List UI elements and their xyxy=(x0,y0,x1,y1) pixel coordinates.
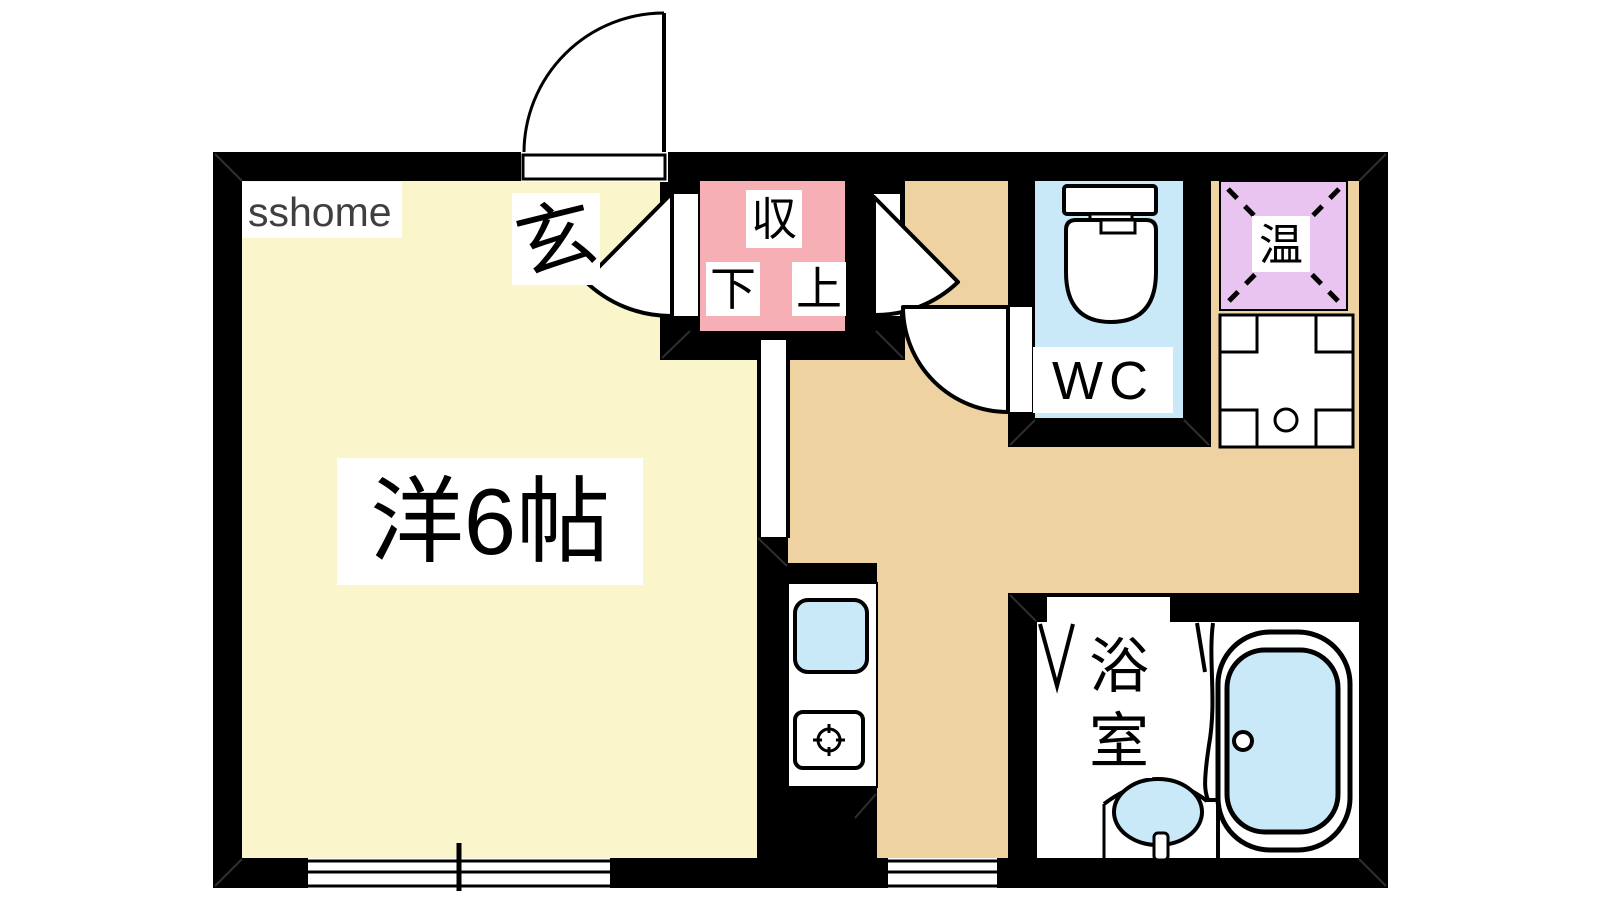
bath-door-opening xyxy=(1047,597,1170,622)
watermark-text: sshome xyxy=(248,189,392,235)
kitchen-fixture xyxy=(1220,315,1353,447)
heater-label: 温 xyxy=(1259,221,1303,270)
middle-wall xyxy=(757,537,788,858)
counter-bottom-wall xyxy=(788,787,877,858)
counter-top-wall xyxy=(788,563,877,583)
bath-label-char2: 室 xyxy=(1089,708,1149,775)
closet-upper-label: 上 xyxy=(796,263,842,315)
toilet-icon xyxy=(1064,186,1156,322)
entrance-door-panel xyxy=(523,155,665,179)
wc-label: WC xyxy=(1052,351,1154,411)
room-hall-opening xyxy=(761,340,786,537)
entrance-door-arc xyxy=(524,13,664,152)
wc-door-panel xyxy=(1008,307,1032,412)
opening-edge-right xyxy=(786,360,790,538)
bathtub xyxy=(1218,632,1350,850)
kitchen-window xyxy=(888,858,997,888)
kitchen-sink xyxy=(795,600,867,672)
floor-plan: WC 温 xyxy=(0,0,1600,900)
opening-edge-left xyxy=(757,360,761,538)
bath-label-char1: 浴 xyxy=(1089,633,1149,700)
closet-label: 収 xyxy=(751,193,797,245)
floor-plan-page: WC 温 xyxy=(0,0,1600,900)
main-room-label: 洋6帖 xyxy=(370,469,610,574)
closet-left-door-panel xyxy=(672,194,698,316)
closet-lower-label: 下 xyxy=(710,263,756,315)
stove-burner xyxy=(795,712,863,768)
bath-left-wall xyxy=(1008,593,1037,888)
